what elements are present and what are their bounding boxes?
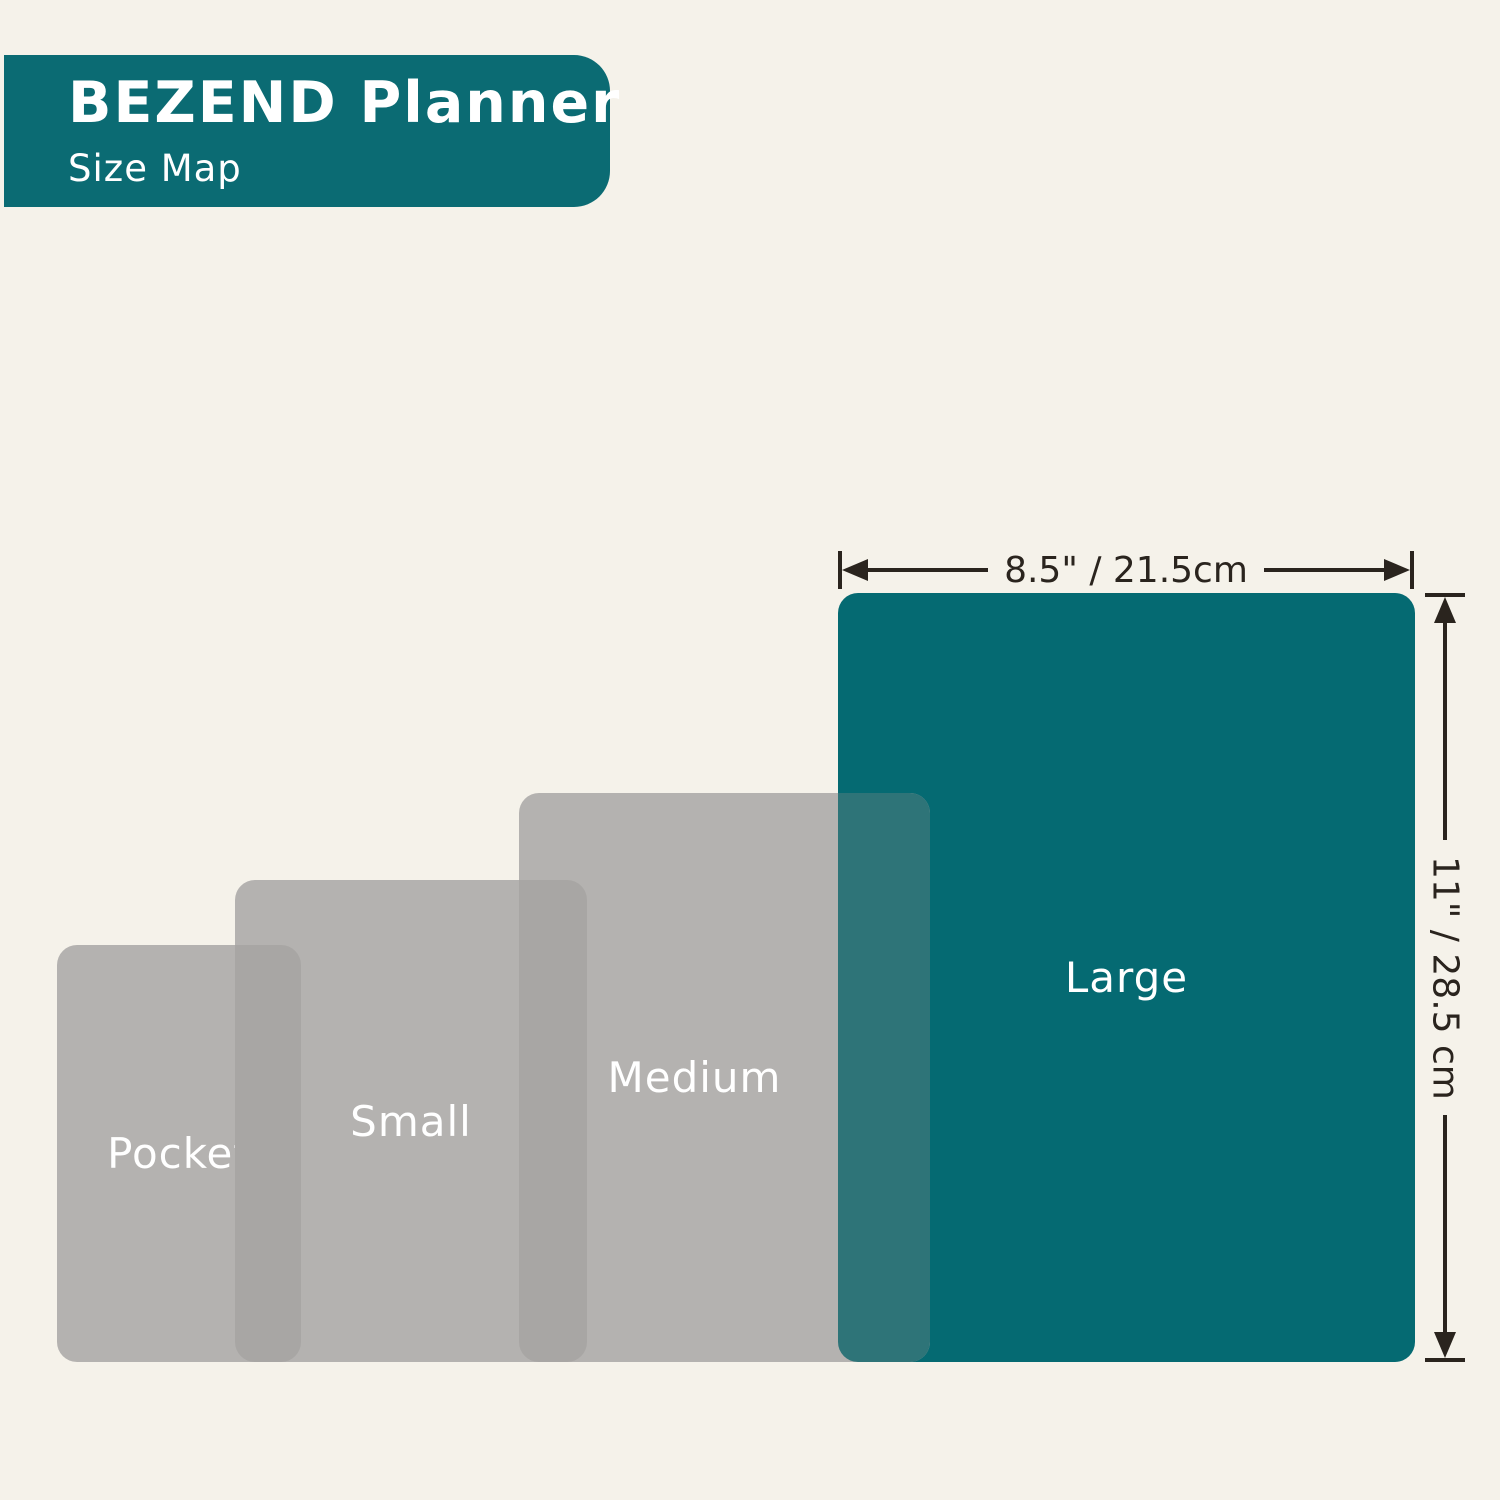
size-map-canvas: BEZEND Planner Size Map Large Medium Sma… [0,0,1500,1500]
right-tick [1410,551,1414,589]
bottom-tick [1425,1358,1465,1362]
width-dimension-label: 8.5" / 21.5cm [988,550,1264,591]
dimension-line [1443,1115,1447,1332]
header-badge: BEZEND Planner Size Map [4,55,610,207]
height-dimension: 11" / 28.5 cm [1423,593,1467,1362]
overlap-stripe-medium-large [838,793,930,1362]
arrow-right-icon [1384,559,1410,581]
width-dimension: 8.5" / 21.5cm [838,548,1414,592]
arrow-up-icon [1434,597,1456,623]
page-subtitle: Size Map [68,147,610,190]
size-label-pocket: Pocket [107,1129,251,1178]
size-label-medium: Medium [608,1053,782,1102]
size-label-large: Large [1065,953,1188,1002]
page-title: BEZEND Planner [68,71,610,137]
arrow-left-icon [842,559,868,581]
dimension-line [868,568,988,572]
size-label-small: Small [350,1097,472,1146]
overlap-stripe-pocket-small [235,945,301,1362]
dimension-line [1443,623,1447,840]
arrow-down-icon [1434,1332,1456,1358]
overlap-stripe-small-medium [519,880,587,1362]
dimension-line [1264,568,1384,572]
height-dimension-label: 11" / 28.5 cm [1425,840,1466,1116]
